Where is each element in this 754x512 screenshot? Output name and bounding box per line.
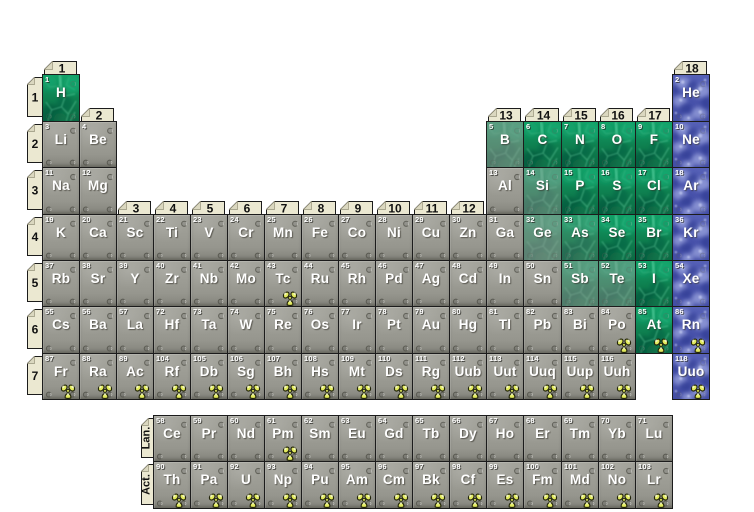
svg-text:2: 2 [32,137,39,151]
svg-text:Act.: Act. [141,474,153,495]
svg-text:7: 7 [32,369,39,383]
svg-text:4: 4 [32,230,39,244]
svg-text:6: 6 [32,323,39,337]
svg-text:Lan.: Lan. [141,427,153,450]
svg-text:1: 1 [32,91,39,105]
svg-text:5: 5 [32,276,39,290]
svg-text:3: 3 [32,184,39,198]
